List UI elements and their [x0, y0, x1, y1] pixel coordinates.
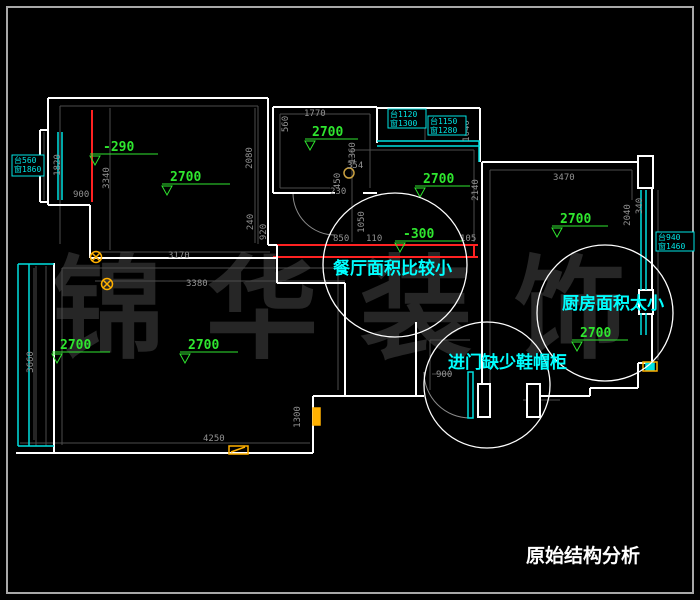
dim-text: 3170: [168, 251, 190, 261]
height-value: 2700: [312, 125, 343, 140]
window-tag-line1: 台1150: [430, 116, 457, 126]
height-arrow-icon: [415, 186, 470, 197]
dim-text: 1360: [348, 142, 358, 164]
height-value: 2700: [60, 338, 91, 353]
door-jamb-right: [527, 384, 540, 417]
dim-text: 3660: [26, 351, 36, 373]
dim-text: 4250: [203, 434, 225, 444]
window-tag: 台1120 窗1300: [388, 109, 426, 128]
height-value: -290: [103, 140, 134, 155]
window-tag-line2: 窗1280: [430, 125, 457, 135]
height-value: -300: [403, 227, 434, 242]
note-kitchen: 厨房面积太小: [562, 293, 664, 314]
height-label: 2700: [415, 172, 470, 197]
window-tag: 台560 窗1860: [12, 155, 44, 176]
dim-text: 110: [366, 234, 382, 244]
entry-door-leaf: [468, 372, 473, 418]
height-label: 2700: [162, 170, 230, 195]
radiator-symbol: [313, 408, 320, 425]
window-tag-line2: 窗1460: [658, 241, 685, 251]
dim-text: 2040: [623, 204, 633, 226]
kitchen-corner-pillar: [638, 156, 653, 188]
height-value: 2700: [170, 170, 201, 185]
window-tag: 台940 窗1460: [656, 232, 694, 251]
height-value: 2700: [580, 326, 611, 341]
floorplan-drawing: 锦华装饰: [0, 0, 700, 600]
window-tag-line1: 台940: [658, 232, 681, 242]
height-value: 2700: [188, 338, 219, 353]
height-value: 2700: [560, 212, 591, 227]
height-arrow-icon: [552, 226, 608, 237]
dim-text: 1050: [357, 211, 367, 233]
height-arrow-icon: [162, 184, 230, 195]
dim-text: 230: [330, 187, 346, 197]
dim-text: 3470: [553, 173, 575, 183]
note-dining: 餐厅面积比较小: [333, 258, 452, 279]
dim-text: 2080: [245, 147, 255, 169]
dim-text: 2140: [471, 179, 481, 201]
dim-text: 850: [333, 234, 349, 244]
window-tag-line1: 台1120: [390, 109, 417, 119]
height-arrow-icon: [90, 154, 158, 165]
door-jamb-left: [478, 384, 490, 417]
dim-text: 340: [635, 198, 645, 214]
dim-text: 240: [246, 214, 256, 230]
dim-text: 1770: [304, 109, 326, 119]
dim-text: 3380: [186, 279, 208, 289]
dim-text: 900: [73, 190, 89, 200]
bedroom-walls: [40, 98, 268, 258]
bathroom-door-arc: [293, 193, 335, 235]
dim-text: 560: [281, 116, 291, 132]
dim-text: 3340: [102, 167, 112, 189]
height-value: 2700: [423, 172, 454, 187]
dim-text: 1820: [53, 154, 63, 176]
balcony-window-band: [377, 141, 480, 162]
drawing-title: 原始结构分析: [526, 544, 640, 567]
window-tags: 台560 窗1860 台1120 窗1300 台1150 窗1280 台940 …: [12, 109, 694, 251]
window-tag-line1: 台560: [14, 155, 37, 165]
floorplan-canvas: 锦华装饰: [0, 0, 700, 600]
window-tag: 台1150 窗1280: [428, 116, 466, 135]
window-tag-line2: 窗1860: [14, 164, 41, 174]
window-tag-line2: 窗1300: [390, 118, 417, 128]
height-label: -290: [90, 140, 158, 165]
height-label: 2700: [552, 212, 608, 237]
dim-text: 920: [259, 224, 269, 240]
floor-symbol-diagonal: [231, 447, 245, 452]
note-entry: 进门缺少鞋帽柜: [448, 352, 567, 373]
dim-text: 1300: [293, 406, 303, 428]
